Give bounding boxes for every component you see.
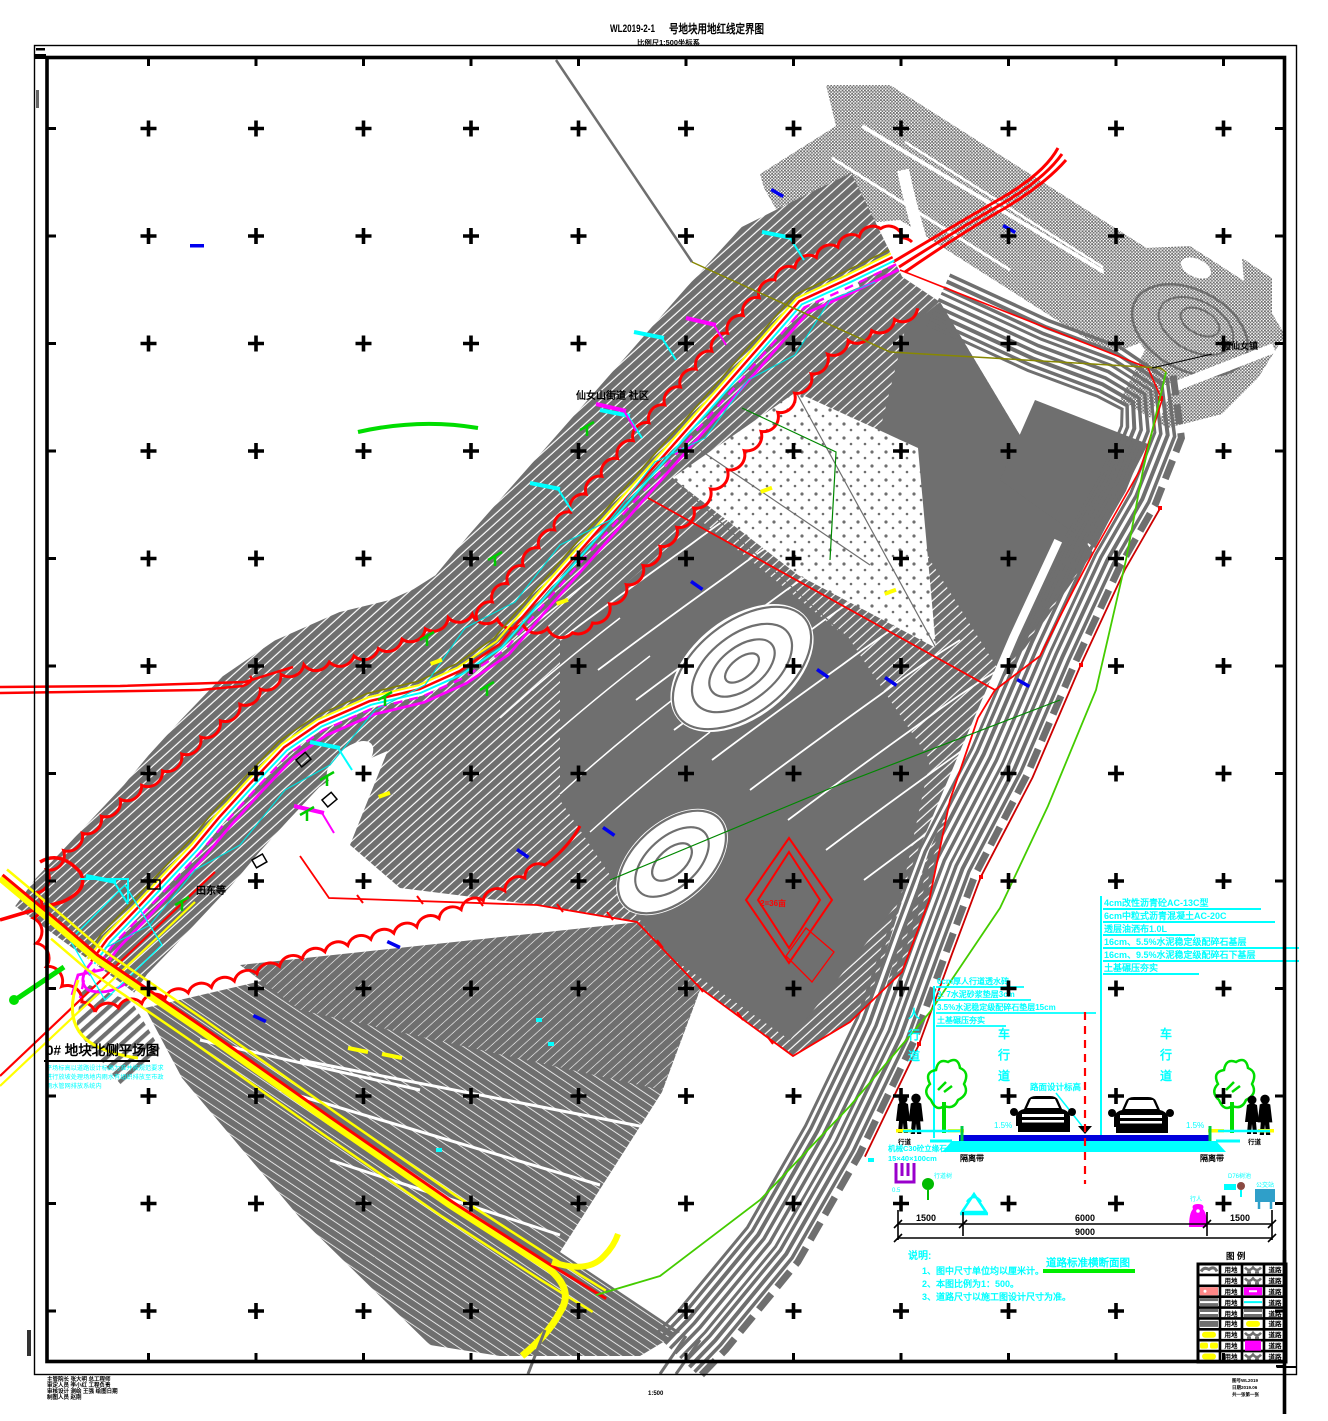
svg-text:车: 车 xyxy=(998,1026,1010,1041)
svg-text:3.5%水泥稳定级配碎石垫层15cm: 3.5%水泥稳定级配碎石垫层15cm xyxy=(937,1002,1056,1012)
svg-text:行: 行 xyxy=(907,1027,920,1042)
svg-text:行: 行 xyxy=(997,1047,1010,1062)
svg-text:共一张第一张: 共一张第一张 xyxy=(1232,1391,1259,1398)
svg-text:WL2019-2-1: WL2019-2-1 xyxy=(610,23,655,35)
svg-text:行人: 行人 xyxy=(1190,1195,1202,1203)
svg-text:用地: 用地 xyxy=(1224,1265,1239,1274)
svg-text:道路: 道路 xyxy=(1269,1352,1283,1361)
svg-text:1:500: 1:500 xyxy=(648,1391,664,1397)
svg-text:行道树: 行道树 xyxy=(934,1172,952,1180)
svg-text:9000: 9000 xyxy=(1075,1227,1095,1237)
svg-text:道路: 道路 xyxy=(1269,1276,1283,1285)
svg-text:16cm、5.5%水泥稳定级配碎石基层: 16cm、5.5%水泥稳定级配碎石基层 xyxy=(1104,936,1247,947)
svg-text:行: 行 xyxy=(1159,1047,1172,1062)
svg-text:D76树池: D76树池 xyxy=(1228,1172,1251,1180)
svg-text:2、本图比例为1：500。: 2、本图比例为1：500。 xyxy=(922,1278,1019,1289)
svg-text:审定人员 李小红 工程负责: 审定人员 李小红 工程负责 xyxy=(47,1381,111,1389)
svg-text:土基碾压夯实: 土基碾压夯实 xyxy=(1104,962,1158,973)
svg-text:道: 道 xyxy=(908,1048,920,1063)
svg-text:用地: 用地 xyxy=(1224,1341,1239,1350)
svg-text:用地: 用地 xyxy=(1224,1287,1239,1296)
svg-text:3: 7水泥砂浆垫层3cm: 3: 7水泥砂浆垫层3cm xyxy=(937,989,1015,999)
svg-text:隔离带: 隔离带 xyxy=(1200,1153,1224,1163)
svg-text:用地: 用地 xyxy=(1224,1309,1239,1318)
svg-text:行道: 行道 xyxy=(1247,1137,1262,1146)
svg-text:6000: 6000 xyxy=(1075,1213,1095,1223)
svg-text:机械C30砼立缘石: 机械C30砼立缘石 xyxy=(888,1143,947,1153)
svg-text:隔离带: 隔离带 xyxy=(960,1153,984,1163)
svg-text:道: 道 xyxy=(998,1068,1010,1083)
svg-text:车: 车 xyxy=(1160,1026,1172,1041)
svg-text:15×40×100cm: 15×40×100cm xyxy=(888,1154,937,1163)
svg-text:0.5: 0.5 xyxy=(892,1188,901,1194)
svg-text:制图人员 赵刚: 制图人员 赵刚 xyxy=(47,1393,82,1401)
svg-text:道路: 道路 xyxy=(1269,1319,1283,1328)
svg-text:日期2019.06: 日期2019.06 xyxy=(1232,1384,1258,1391)
svg-text:用地: 用地 xyxy=(1224,1330,1239,1339)
svg-text:号地块用地红线定界图: 号地块用地红线定界图 xyxy=(669,21,764,36)
svg-text:道路: 道路 xyxy=(1269,1287,1283,1296)
svg-text:1、图中尺寸单位均以厘米计。: 1、图中尺寸单位均以厘米计。 xyxy=(922,1265,1044,1276)
svg-text:主管院长 张大明 总工程师: 主管院长 张大明 总工程师 xyxy=(47,1375,111,1383)
svg-text:图 例: 图 例 xyxy=(1226,1251,1246,1261)
svg-text:说明:: 说明: xyxy=(908,1249,931,1262)
svg-text:1500: 1500 xyxy=(1230,1213,1250,1223)
svg-text:4cm改性沥青砼AC-13C型: 4cm改性沥青砼AC-13C型 xyxy=(1104,897,1209,908)
svg-text:用地: 用地 xyxy=(1224,1319,1239,1328)
svg-text:平场标高以道路设计标高为准并按规范要求: 平场标高以道路设计标高为准并按规范要求 xyxy=(46,1064,164,1072)
svg-text:土基碾压夯实: 土基碾压夯实 xyxy=(937,1015,985,1025)
svg-text:道路: 道路 xyxy=(1269,1341,1283,1350)
svg-text:1500: 1500 xyxy=(916,1213,936,1223)
svg-text:进行放坡处理场地内雨水有组织排放至市政: 进行放坡处理场地内雨水有组织排放至市政 xyxy=(46,1073,164,1081)
svg-text:雨水管网排放系统内: 雨水管网排放系统内 xyxy=(46,1082,102,1090)
svg-text:道路: 道路 xyxy=(1269,1330,1283,1339)
svg-text:用地: 用地 xyxy=(1224,1298,1239,1307)
svg-text:2=36亩: 2=36亩 xyxy=(760,898,786,908)
svg-text:16cm、9.5%水泥稳定级配碎石下基层: 16cm、9.5%水泥稳定级配碎石下基层 xyxy=(1104,949,1256,960)
svg-text:3、道路尺寸以施工图设计尺寸为准。: 3、道路尺寸以施工图设计尺寸为准。 xyxy=(922,1291,1071,1302)
svg-text:1.5%: 1.5% xyxy=(1186,1121,1204,1130)
svg-text:仙女山街道 社区: 仙女山街道 社区 xyxy=(576,389,649,402)
svg-text:霞仙女镇: 霞仙女镇 xyxy=(1222,340,1258,351)
svg-text:道路标准横断面图: 道路标准横断面图 xyxy=(1046,1256,1130,1269)
svg-text:田东等: 田东等 xyxy=(196,884,226,897)
svg-text:道路: 道路 xyxy=(1269,1298,1283,1307)
svg-text:图号WL2019: 图号WL2019 xyxy=(1232,1377,1259,1384)
svg-text:6cm中粒式沥青混凝土AC-20C: 6cm中粒式沥青混凝土AC-20C xyxy=(1104,910,1227,921)
svg-text:道路: 道路 xyxy=(1269,1265,1283,1274)
svg-text:比例尺1:500坐标系: 比例尺1:500坐标系 xyxy=(637,38,700,47)
svg-text:0# 地块北侧平场图: 0# 地块北侧平场图 xyxy=(46,1042,159,1058)
svg-text:透层油洒布1.0L: 透层油洒布1.0L xyxy=(1104,923,1168,934)
svg-text:公交站: 公交站 xyxy=(1256,1181,1274,1189)
svg-text:用地: 用地 xyxy=(1224,1276,1239,1285)
svg-text:道: 道 xyxy=(1160,1068,1172,1083)
svg-text:审核设计 测绘 王强 绘图日期: 审核设计 测绘 王强 绘图日期 xyxy=(47,1387,118,1395)
svg-text:人: 人 xyxy=(908,1006,921,1021)
svg-text:路面设计标高: 路面设计标高 xyxy=(1030,1082,1082,1092)
svg-text:用地: 用地 xyxy=(1224,1352,1239,1361)
svg-text:1.5%: 1.5% xyxy=(994,1121,1012,1130)
svg-text:6cm厚人行道透水砖: 6cm厚人行道透水砖 xyxy=(937,976,1009,986)
